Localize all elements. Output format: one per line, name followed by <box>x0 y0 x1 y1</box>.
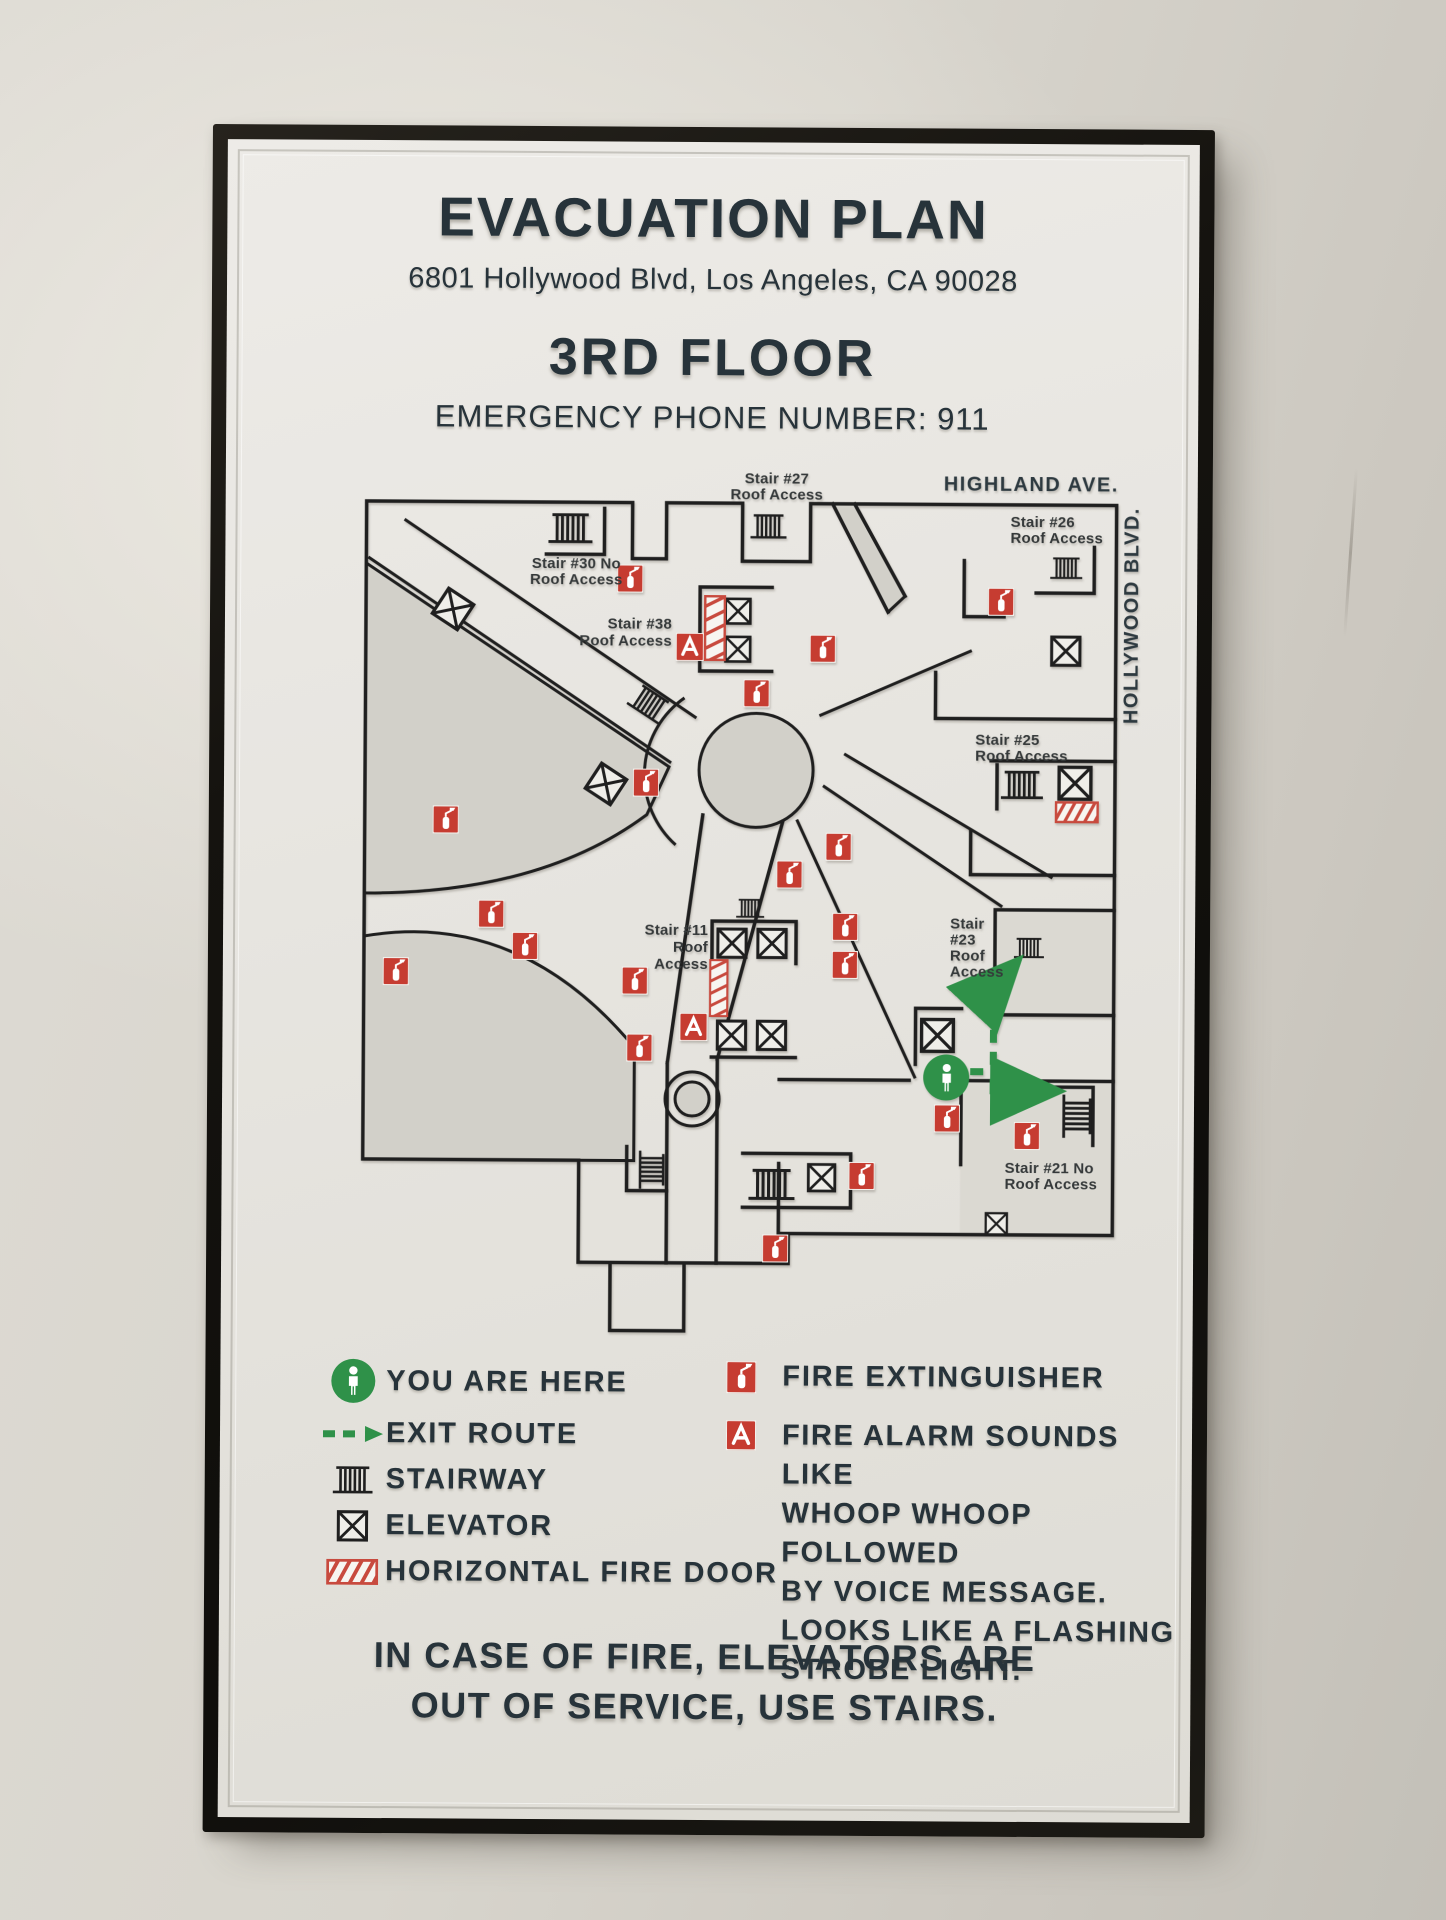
stair26-label: Stair #26 <box>1011 514 1075 531</box>
elevator-icon <box>808 1164 835 1191</box>
fire-extinguisher-icon <box>626 1034 652 1062</box>
fire-extinguisher-icon <box>383 957 409 985</box>
legend-label: ELEVATOR <box>385 1509 553 1543</box>
legend-row-fire-extinguisher: FIRE EXTINGUISHER <box>726 1360 1176 1396</box>
stair23-room <box>995 910 1115 1016</box>
stair38-label: Roof Access <box>579 632 672 650</box>
fire-extinguisher-icon <box>810 635 836 663</box>
corridor-wedge <box>832 504 906 612</box>
legend-row-fire-door: HORIZONTAL FIRE DOOR <box>319 1555 778 1591</box>
legend-label: HORIZONTAL FIRE DOOR <box>385 1555 778 1590</box>
fire-extinguisher-icon <box>633 769 659 797</box>
street-label-hollywood-blvd: HOLLYWOOD BLVD. <box>1120 507 1143 724</box>
stairway-icon <box>750 515 786 537</box>
stair25-label: Roof Access <box>975 748 1068 766</box>
you-are-here-marker <box>923 1054 969 1100</box>
fire-extinguisher-icon <box>433 805 459 833</box>
wall-crack <box>1343 468 1358 638</box>
inner-walls-top-right <box>935 546 1116 719</box>
elevator-icon <box>921 1019 953 1051</box>
stair25-label: Stair #25 <box>975 732 1039 749</box>
fire-alarm-icon <box>679 1013 707 1041</box>
fire-extinguisher-icon <box>849 1162 875 1190</box>
fire-extinguisher-icon <box>622 967 648 995</box>
floor-title: 3RD FLOOR <box>226 325 1198 391</box>
sign-title: EVACUATION PLAN <box>227 183 1199 253</box>
fire-extinguisher-icon <box>762 1235 788 1263</box>
stair27-label: Stair #27 <box>745 470 809 487</box>
fire-extinguisher-icon <box>726 1361 782 1393</box>
footer-notice: IN CASE OF FIRE, ELEVATORS ARE OUT OF SE… <box>218 1629 1191 1735</box>
fire-extinguisher-icon <box>776 861 802 889</box>
elevator-icon <box>1059 767 1091 799</box>
round-stair-inner <box>675 1082 709 1116</box>
fire-door-icon <box>319 1558 385 1584</box>
stair26-label: Roof Access <box>1010 530 1103 548</box>
elevator-icon <box>718 929 746 957</box>
legend-row-you-are-here: YOU ARE HERE <box>320 1358 779 1407</box>
legend-label: YOU ARE HERE <box>386 1365 627 1399</box>
stair11-label: Access <box>654 956 708 973</box>
footer-line: OUT OF SERVICE, USE STAIRS. <box>218 1679 1190 1735</box>
fire-extinguisher-icon <box>478 900 504 928</box>
elevator-icon <box>986 1213 1007 1234</box>
stair38-label: Stair #38 <box>608 615 672 632</box>
stairway-icon <box>1001 772 1043 798</box>
elevator-icon <box>717 1021 745 1049</box>
legend-label: STAIRWAY <box>386 1463 548 1497</box>
footer-line: IN CASE OF FIRE, ELEVATORS ARE <box>219 1629 1191 1685</box>
elevator-icon <box>319 1509 385 1541</box>
exit-route-icon <box>320 1423 386 1443</box>
fire-extinguisher-icon <box>743 679 769 707</box>
fire-extinguisher-icon <box>934 1105 960 1133</box>
fire-alarm-line: WHOOP WHOOP FOLLOWED <box>781 1494 1175 1574</box>
fire-extinguisher-icon <box>512 932 538 960</box>
emergency-phone: EMERGENCY PHONE NUMBER: 911 <box>226 397 1198 439</box>
stairway-icon <box>640 1151 663 1189</box>
fire-alarm-icon <box>676 633 704 661</box>
stair30-label: Roof Access <box>530 571 623 589</box>
tenant-area-upper-left <box>364 563 670 895</box>
elevator-icon <box>726 599 751 624</box>
fire-alarm-line: FIRE ALARM SOUNDS LIKE <box>782 1417 1176 1497</box>
stairway-icon <box>1050 558 1082 578</box>
stairway-icon <box>320 1464 386 1494</box>
legend-row-stairway: STAIRWAY <box>320 1463 779 1499</box>
elevator-icon <box>725 637 750 662</box>
legend-row-elevator: ELEVATOR <box>319 1509 778 1545</box>
fire-extinguisher-icon <box>1014 1122 1040 1150</box>
fire-alarm-line: BY VOICE MESSAGE. <box>781 1572 1175 1613</box>
stair11-label: Roof <box>673 939 709 956</box>
stair11-label: Stair #11 <box>645 922 709 939</box>
legend-label: FIRE EXTINGUISHER <box>782 1361 1104 1396</box>
stair30-label: Stair #30 No <box>532 555 621 573</box>
legend-label: EXIT ROUTE <box>386 1417 578 1451</box>
rotunda <box>699 713 814 828</box>
stair21-label: Roof Access <box>1004 1176 1097 1194</box>
stair23-label: #23 <box>950 932 976 949</box>
stair21-label: Stair #21 No <box>1005 1160 1094 1178</box>
fire-door-icon <box>700 595 729 679</box>
legend-row-exit-route: EXIT ROUTE <box>320 1417 779 1453</box>
stairway-icon <box>748 1170 794 1198</box>
fire-extinguisher-icon <box>832 951 858 979</box>
fire-extinguisher-icon <box>826 833 852 861</box>
elevator-icon <box>758 929 786 957</box>
fire-alarm-icon <box>726 1416 782 1450</box>
evacuation-map: Stair #27 Roof Access Stair #30 No Roof … <box>348 461 1153 1346</box>
fire-door-icon <box>1053 799 1107 825</box>
you-are-here-icon <box>320 1358 386 1404</box>
street-label-highland-ave: HIGHLAND AVE. <box>944 473 1119 496</box>
elevator-icon <box>757 1021 785 1049</box>
stair23-label: Stair <box>950 916 984 933</box>
elevator-icon <box>1052 637 1080 665</box>
stair23-label: Access <box>950 964 1004 981</box>
stair23-label: Roof <box>950 948 986 965</box>
stairway-icon <box>548 515 592 542</box>
sign-frame: EVACUATION PLAN 6801 Hollywood Blvd, Los… <box>203 124 1215 1838</box>
fire-extinguisher-icon <box>988 588 1014 616</box>
sign-panel: EVACUATION PLAN 6801 Hollywood Blvd, Los… <box>218 139 1200 1823</box>
sign-address: 6801 Hollywood Blvd, Los Angeles, CA 900… <box>227 261 1199 300</box>
fire-extinguisher-icon <box>832 913 858 941</box>
legend-left-column: YOU ARE HERE EXIT ROUTE STAIRWAY ELEVATO… <box>319 1358 779 1604</box>
stair27-label: Roof Access <box>730 486 823 504</box>
